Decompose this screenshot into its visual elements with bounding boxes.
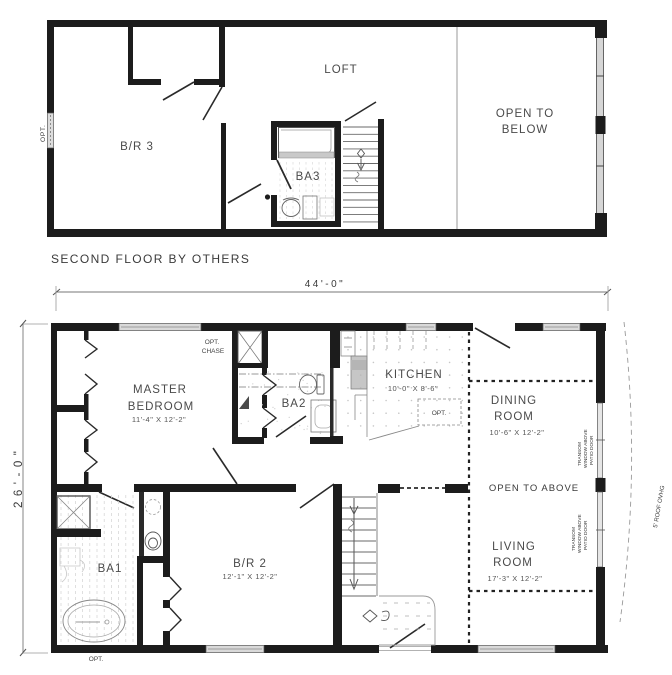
- svg-text:CHASE: CHASE: [202, 348, 225, 355]
- svg-text:10'-6" X 12'-2": 10'-6" X 12'-2": [490, 428, 545, 437]
- svg-text:BA1: BA1: [98, 563, 123, 575]
- svg-text:BELOW: BELOW: [502, 124, 549, 136]
- svg-text:BA3: BA3: [296, 171, 321, 183]
- svg-text:TRANSOM: TRANSOM: [577, 442, 583, 466]
- svg-text:LOFT: LOFT: [324, 64, 357, 76]
- svg-text:ROOM: ROOM: [493, 557, 533, 569]
- svg-text:OPT.: OPT.: [40, 124, 47, 142]
- svg-text:TRANSOM: TRANSOM: [571, 527, 577, 551]
- svg-text:44'-0": 44'-0": [305, 279, 345, 290]
- svg-text:SECOND FLOOR BY OTHERS: SECOND FLOOR BY OTHERS: [51, 252, 250, 266]
- svg-text:PATIO DOOR: PATIO DOOR: [583, 520, 589, 550]
- svg-text:11'-4" X 12'-2": 11'-4" X 12'-2": [132, 415, 186, 424]
- svg-text:MASTER: MASTER: [133, 384, 187, 396]
- svg-text:WINDOW ABOVE: WINDOW ABOVE: [577, 514, 583, 553]
- svg-text:KITCHEN: KITCHEN: [385, 369, 442, 381]
- svg-text:OPEN TO: OPEN TO: [496, 108, 554, 120]
- svg-text:B/R 2: B/R 2: [233, 558, 267, 570]
- svg-text:LIVING: LIVING: [492, 541, 536, 553]
- svg-text:OPT.: OPT.: [89, 656, 104, 663]
- svg-text:B/R 3: B/R 3: [120, 141, 154, 153]
- svg-text:OPEN TO ABOVE: OPEN TO ABOVE: [489, 483, 579, 494]
- svg-text:WINDOW ABOVE: WINDOW ABOVE: [583, 429, 589, 468]
- svg-text:17'-3" X 12'-2": 17'-3" X 12'-2": [488, 574, 543, 583]
- svg-text:PATIO DOOR: PATIO DOOR: [589, 435, 595, 465]
- svg-text:BA2: BA2: [282, 398, 307, 410]
- svg-text:12'-1" X 12'-2": 12'-1" X 12'-2": [223, 572, 278, 581]
- svg-text:OPT.: OPT.: [432, 410, 447, 417]
- svg-text:ROOM: ROOM: [494, 411, 534, 423]
- svg-text:DINING: DINING: [491, 395, 537, 407]
- svg-text:10'-0" X 8'-6": 10'-0" X 8'-6": [388, 384, 438, 393]
- svg-text:OPT.: OPT.: [205, 339, 220, 346]
- svg-text:BEDROOM: BEDROOM: [128, 401, 194, 413]
